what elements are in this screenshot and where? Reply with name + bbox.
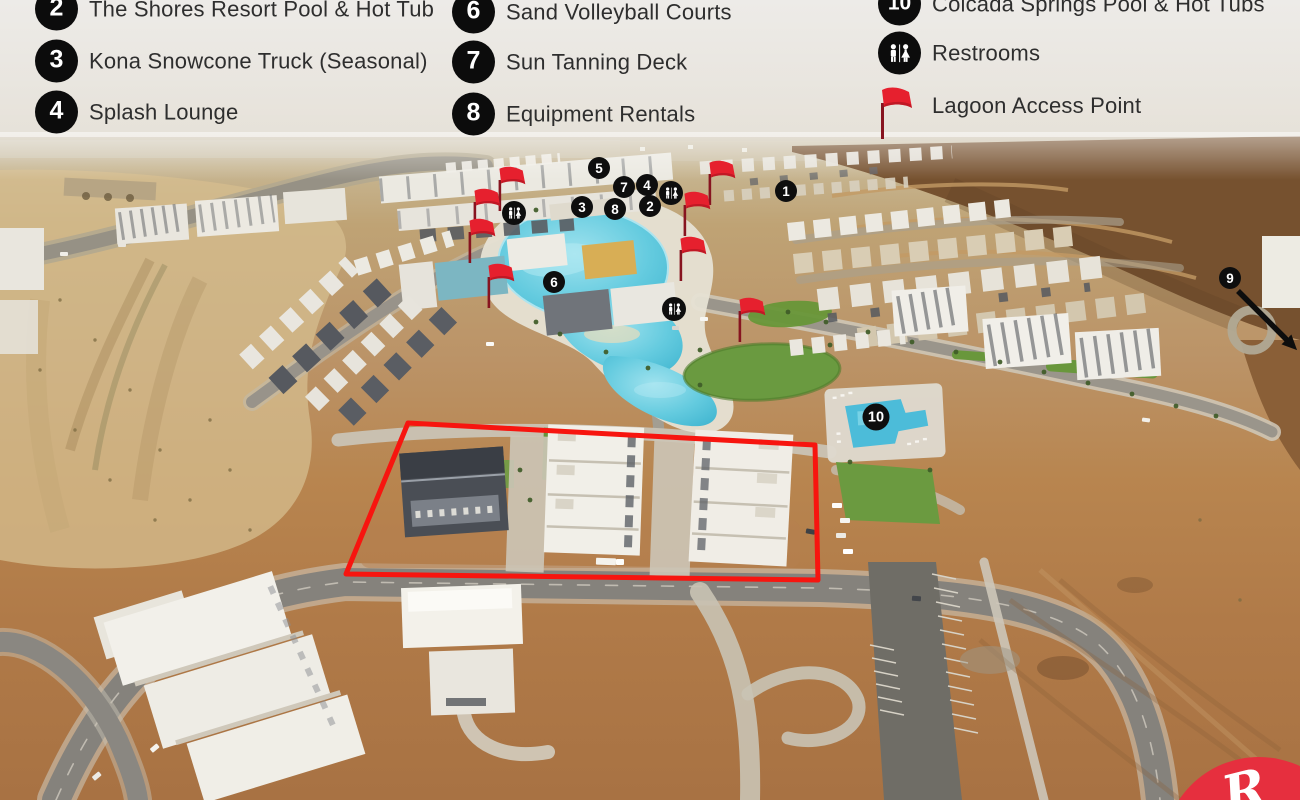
legend-item: 4Splash Lounge: [35, 91, 238, 134]
legend-marker-4: 4: [35, 91, 78, 134]
resort-amenities-map: 2The Shores Resort Pool & Hot Tub3Kona S…: [0, 0, 1300, 800]
brand-logo-letter: R: [1216, 757, 1273, 800]
map-marker-2: 2: [639, 195, 661, 217]
map-marker-5: 5: [588, 157, 610, 179]
condo-building: [689, 430, 794, 567]
legend-item: 7Sun Tanning Deck: [452, 41, 687, 84]
restroom-marker: [662, 297, 686, 321]
legend-item-label: Splash Lounge: [89, 99, 238, 125]
legend-item-label: Restrooms: [932, 40, 1040, 66]
map-marker-3: 3: [571, 196, 593, 218]
lagoon-access-flag-marker: [485, 263, 516, 313]
legend-item: 6Sand Volleyball Courts: [452, 0, 732, 34]
map-legend: 2The Shores Resort Pool & Hot Tub3Kona S…: [0, 0, 1300, 137]
legend-marker-10: 10: [878, 0, 921, 26]
legend-marker-3: 3: [35, 40, 78, 83]
legend-item: 2The Shores Resort Pool & Hot Tub: [35, 0, 434, 31]
legend-item-label: Sun Tanning Deck: [506, 49, 687, 75]
legend-item: Restrooms: [878, 32, 1040, 75]
legend-item: 3Kona Snowcone Truck (Seasonal): [35, 40, 428, 83]
legend-item-label: Lagoon Access Point: [932, 93, 1141, 119]
map-marker-10: 10: [863, 404, 890, 431]
legend-item: Lagoon Access Point: [878, 73, 1141, 139]
legend-item-label: The Shores Resort Pool & Hot Tub: [89, 0, 434, 22]
map-marker-1: 1: [775, 180, 797, 202]
legend-item: 8Equipment Rentals: [452, 93, 695, 136]
legend-marker-7: 7: [452, 41, 495, 84]
lagoon-access-flag-marker: [677, 236, 708, 286]
legend-item-label: Equipment Rentals: [506, 101, 695, 127]
map-marker-9: 9: [1219, 267, 1241, 289]
lagoon-access-flag-marker: [736, 297, 767, 347]
legend-item-label: Sand Volleyball Courts: [506, 0, 732, 25]
legend-item: 10Colcada Springs Pool & Hot Tubs: [878, 0, 1265, 26]
legend-marker-6: 6: [452, 0, 495, 34]
restroom-marker: [659, 181, 683, 205]
legend-marker-8: 8: [452, 93, 495, 136]
map-marker-7: 7: [613, 176, 635, 198]
dark-roof-building: [399, 446, 509, 537]
lagoon-access-flag-marker: [681, 191, 712, 241]
restrooms-icon: [878, 32, 921, 75]
lagoon-flag-icon: [878, 87, 921, 139]
condo-building: [544, 424, 644, 555]
map-marker-6: 6: [543, 271, 565, 293]
restroom-marker: [502, 201, 526, 225]
legend-item-label: Kona Snowcone Truck (Seasonal): [89, 48, 428, 74]
legend-item-label: Colcada Springs Pool & Hot Tubs: [932, 0, 1265, 17]
map-marker-8: 8: [604, 198, 626, 220]
lagoon-access-flag-marker: [466, 218, 497, 268]
map-marker-4: 4: [636, 174, 658, 196]
legend-marker-2: 2: [35, 0, 78, 31]
